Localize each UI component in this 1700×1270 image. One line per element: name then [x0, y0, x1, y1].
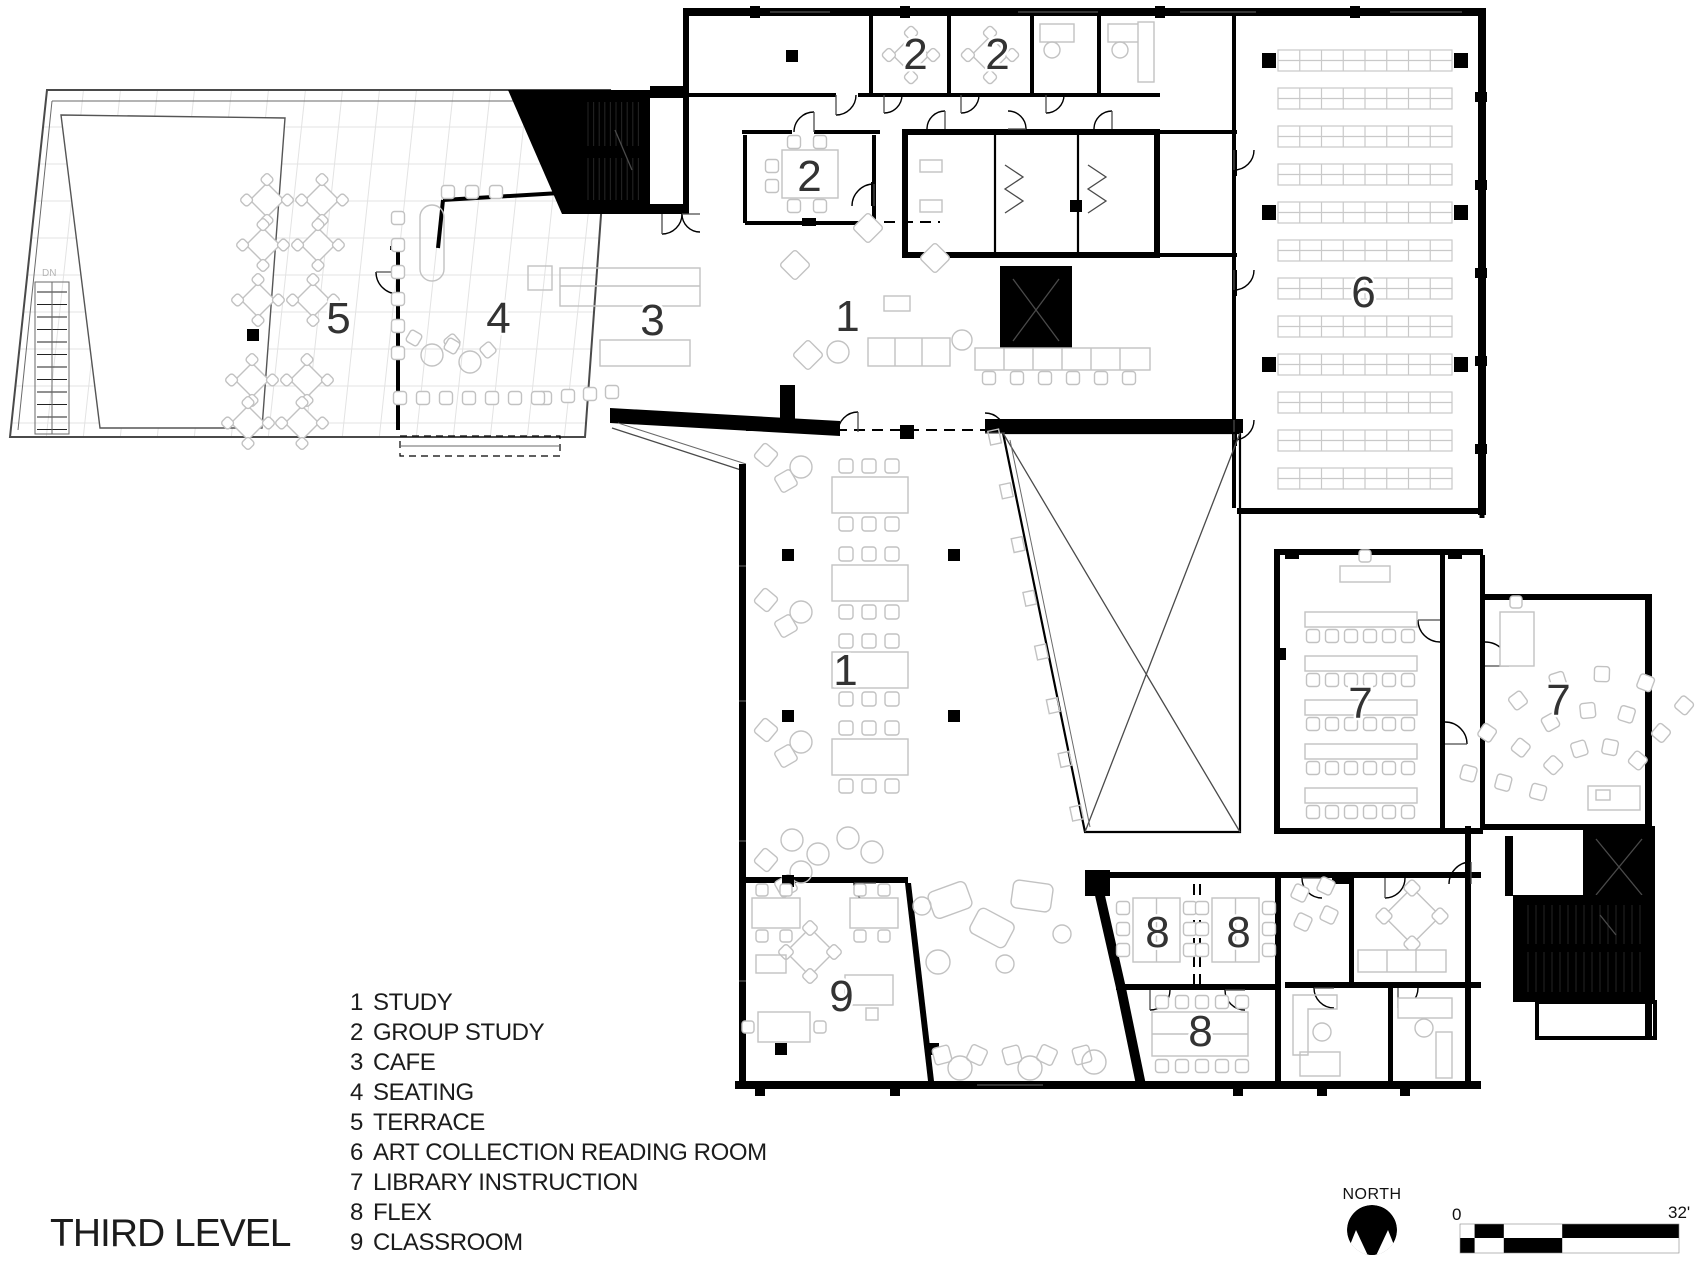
legend-item-2: 2GROUP STUDY: [350, 1018, 767, 1048]
legend-item-8: 8FLEX: [350, 1198, 767, 1228]
building-walls: [376, 6, 1655, 1096]
legend-item-label: FLEX: [373, 1199, 431, 1226]
room-label-seating: 4: [486, 294, 510, 343]
legend-item-5: 5TERRACE: [350, 1108, 767, 1138]
legend-item-label: STUDY: [373, 989, 452, 1016]
room-label-cafe: 3: [640, 296, 663, 345]
room-label-classroom: 9: [829, 972, 852, 1021]
legend-item-6: 6ART COLLECTION READING ROOM: [350, 1138, 767, 1168]
legend-item-number: 2: [350, 1018, 364, 1048]
legend-item-label: CLASSROOM: [373, 1229, 523, 1256]
room-label-flex-a: 8: [1145, 908, 1168, 957]
legend-item-number: 9: [350, 1228, 364, 1258]
legend-item-label: LIBRARY INSTRUCTION: [373, 1169, 638, 1196]
legend-item-number: 7: [350, 1168, 364, 1198]
stair-direction-note: DN: [42, 268, 56, 279]
legend-item-number: 3: [350, 1048, 364, 1078]
legend-item-1: 1STUDY: [350, 988, 767, 1018]
scale-bar: [1460, 1224, 1679, 1253]
room-label-flex-b: 8: [1226, 908, 1249, 957]
legend-item-number: 8: [350, 1198, 364, 1228]
room-label-study-lower: 1: [833, 646, 856, 695]
north-arrow: [1344, 1205, 1400, 1260]
legend-item-number: 4: [350, 1078, 364, 1108]
legend-item-label: ART COLLECTION READING ROOM: [373, 1139, 767, 1166]
north-label: NORTH: [1342, 1186, 1401, 1203]
room-label-group-study-c: 2: [797, 152, 820, 201]
page-title: THIRD LEVEL: [50, 1212, 290, 1256]
terrace-bar-stools: [539, 386, 619, 405]
legend-item-number: 1: [350, 988, 364, 1018]
legend-item-label: TERRACE: [373, 1109, 485, 1136]
legend-item-number: 5: [350, 1108, 364, 1138]
room-label-study-upper: 1: [835, 292, 858, 341]
terrace-wing: [0, 85, 619, 456]
legend: 1STUDY2GROUP STUDY3CAFE4SEATING5TERRACE6…: [350, 988, 767, 1258]
room-label-art-collection: 6: [1351, 268, 1374, 317]
legend-item-label: SEATING: [373, 1079, 474, 1106]
legend-item-label: CAFE: [373, 1049, 435, 1076]
room-label-terrace: 5: [326, 294, 349, 343]
legend-item-number: 6: [350, 1138, 364, 1168]
floor-plan-svg: 543122261779888 DN NORTH 0 32': [0, 0, 1700, 1270]
room-label-instruction-b: 7: [1546, 676, 1569, 725]
legend-item-9: 9CLASSROOM: [350, 1228, 767, 1258]
legend-item-4: 4SEATING: [350, 1078, 767, 1108]
scale-zero-label: 0: [1452, 1205, 1461, 1224]
room-label-instruction-a: 7: [1348, 679, 1371, 728]
room-label-group-study-b: 2: [985, 30, 1008, 79]
terrace-stair: [35, 282, 69, 434]
scale-end-label: 32': [1668, 1203, 1690, 1222]
legend-item-7: 7LIBRARY INSTRUCTION: [350, 1168, 767, 1198]
room-label-group-study-a: 2: [903, 30, 926, 79]
floor-plan-sheet: 543122261779888 DN NORTH 0 32' 1STUDY2GR…: [0, 0, 1700, 1270]
legend-item-label: GROUP STUDY: [373, 1019, 544, 1046]
room-label-flex-c: 8: [1188, 1007, 1211, 1056]
legend-item-3: 3CAFE: [350, 1048, 767, 1078]
